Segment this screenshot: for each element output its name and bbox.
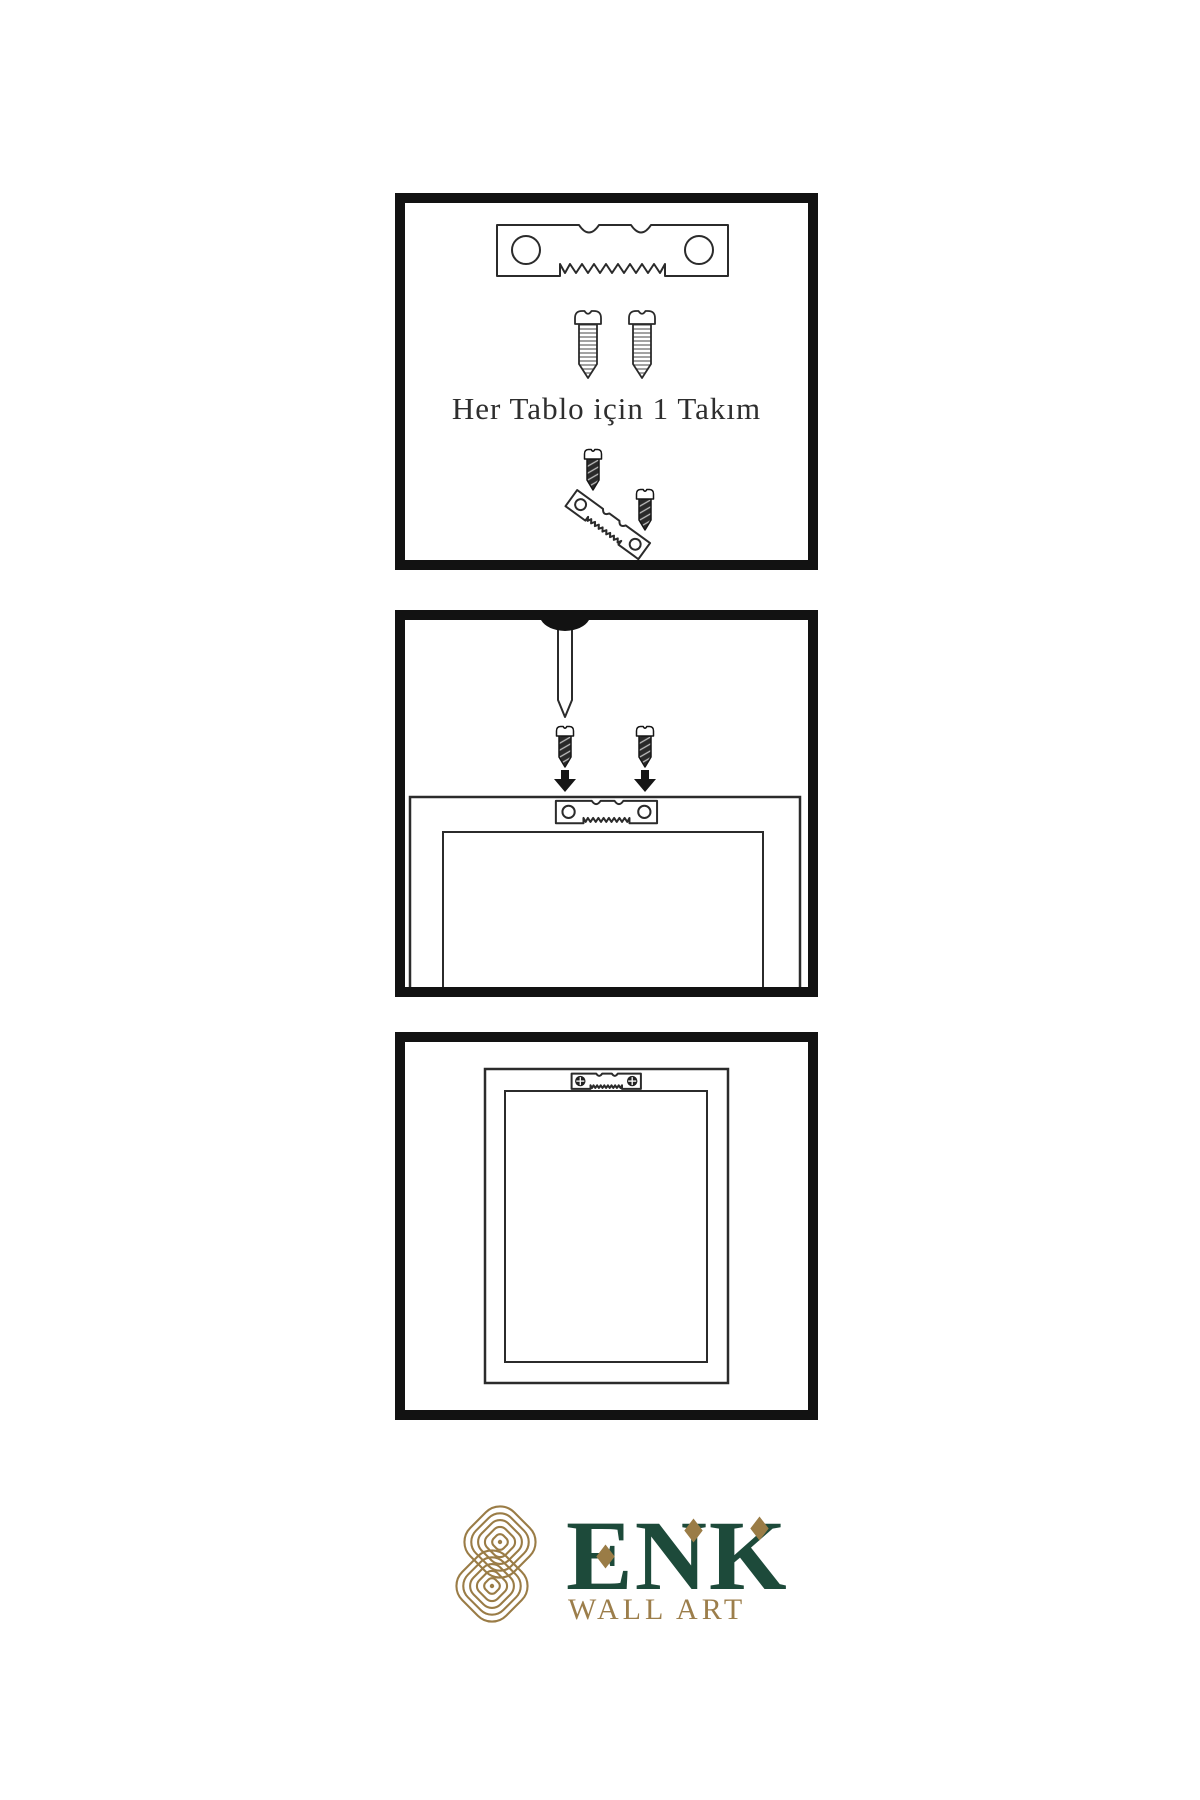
frame-back-inner-edge — [443, 832, 763, 987]
knot-emblem-icon — [437, 1496, 555, 1632]
step-1-drawing — [405, 203, 808, 560]
panel-step-2-attach-hanger — [395, 610, 818, 997]
sawtooth-hanger-icon — [556, 801, 657, 823]
dark-screw-icon — [557, 727, 574, 768]
wall-nail-icon — [541, 620, 589, 717]
screw-icon — [575, 311, 601, 378]
screw-into-hanger-illustration — [565, 450, 653, 560]
dark-screw-icon — [637, 727, 654, 768]
kit-caption: Her Tablo için 1 Takım — [405, 391, 808, 427]
panel-step-1-hardware-kit: Her Tablo için 1 Takım — [395, 193, 818, 570]
crosshead-screw-icon — [575, 1076, 585, 1086]
dark-screw-icon — [637, 490, 654, 531]
tilted-sawtooth-hanger-icon — [565, 490, 650, 559]
brand-subtitle: WALL ART — [568, 1593, 798, 1627]
picture-frame-inner — [505, 1091, 707, 1362]
down-arrow-icon — [554, 770, 576, 792]
instruction-sheet: Her Tablo için 1 Takım — [0, 0, 1200, 1800]
sawtooth-hanger-icon — [497, 225, 728, 276]
dark-screw-icon — [585, 450, 602, 491]
step-3-drawing — [405, 1042, 807, 1410]
frame-back-outer-edge — [410, 797, 800, 987]
screw-icon — [629, 311, 655, 378]
panel-step-3-hang-frame — [395, 1032, 818, 1420]
down-arrow-icon — [634, 770, 656, 792]
crosshead-screw-icon — [627, 1076, 637, 1086]
step-2-drawing — [405, 620, 808, 987]
